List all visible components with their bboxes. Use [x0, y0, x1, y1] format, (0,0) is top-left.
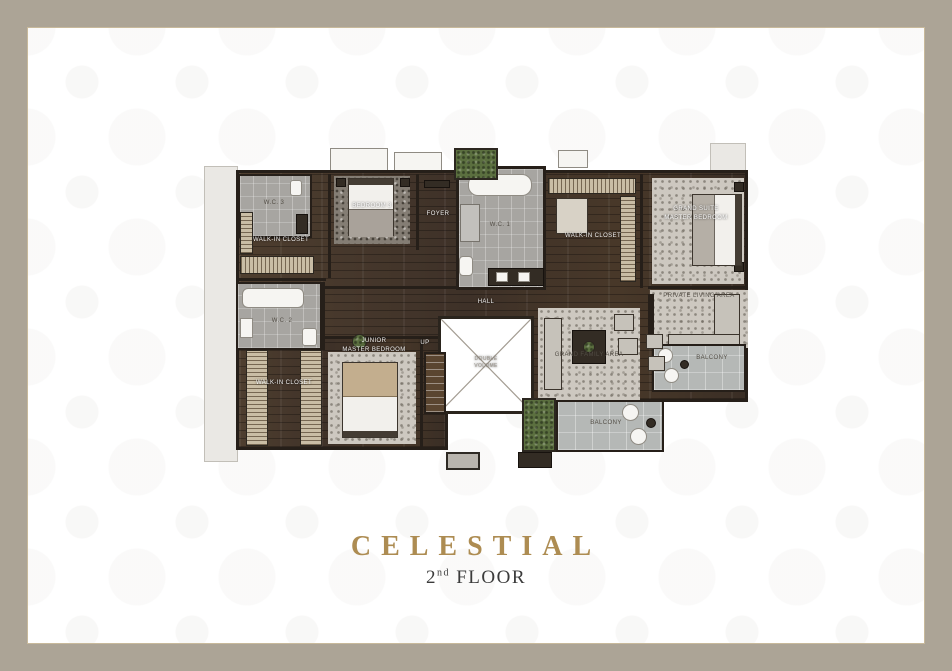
- wardrobe: [620, 196, 636, 282]
- label-balcony-right: BALCONY: [682, 355, 742, 361]
- vanity-counter: [296, 214, 308, 234]
- entry-ledge: [518, 452, 552, 468]
- armchair: [614, 314, 634, 331]
- blanket: [349, 209, 393, 237]
- label-wc3: W.C. 3: [244, 200, 304, 206]
- armchair: [648, 356, 665, 371]
- ledge-box-3: [558, 150, 588, 168]
- floor-number: 2: [426, 567, 437, 588]
- label-void-1: DOUBLE: [448, 357, 524, 362]
- toilet: [302, 328, 317, 346]
- bathtub: [242, 288, 304, 308]
- sink: [518, 272, 530, 282]
- wall-segment: [648, 286, 748, 289]
- wall-segment: [420, 336, 423, 450]
- wardrobe: [240, 212, 253, 254]
- toilet: [290, 180, 302, 196]
- label-walkin-closet-right: WALK-IN CLOSET: [548, 233, 638, 239]
- armchair: [646, 334, 663, 349]
- label-foyer: FOYER: [418, 211, 458, 217]
- ledge-box-1: [330, 148, 388, 172]
- chair: [622, 404, 639, 421]
- closet-island: [556, 198, 588, 234]
- staircase: [424, 352, 446, 414]
- label-walkin-closet-top: WALK-IN CLOSET: [238, 237, 324, 243]
- headboard: [349, 179, 393, 185]
- toilet: [459, 256, 473, 276]
- wardrobe: [300, 350, 322, 446]
- wall-segment: [312, 286, 458, 289]
- nightstand: [734, 182, 744, 192]
- entry-steps: [446, 452, 480, 470]
- label-family-area: GRAND FAMILY AREA: [550, 352, 628, 358]
- label-junior-2: MASTER BEDROOM: [328, 347, 420, 353]
- chair: [630, 428, 647, 445]
- label-hall: HALL: [466, 299, 506, 305]
- label-void-2: VOLUME: [448, 364, 524, 369]
- headboard: [343, 431, 397, 437]
- blanket: [343, 363, 397, 397]
- wardrobe: [240, 256, 314, 274]
- label-walkin-closet-bottom: WALK-IN CLOSET: [240, 380, 328, 386]
- wall-segment: [640, 174, 643, 288]
- label-wc1: W.C. 1: [470, 222, 530, 228]
- label-private-living: PRIVATE LIVING AREA: [652, 293, 746, 299]
- brochure-page: W.C. 3 WALK-IN CLOSET BEDROOM 3 FOYER W.…: [0, 0, 952, 671]
- sink: [496, 272, 508, 282]
- label-grand-suite-2: MASTER BEDROOM: [652, 215, 740, 221]
- floor-title: 2nd FLOOR: [0, 567, 952, 589]
- floor-ordinal: nd: [437, 568, 450, 579]
- terrace-band-left: [204, 166, 238, 462]
- nightstand: [400, 178, 410, 187]
- floor-word: FLOOR: [456, 567, 526, 588]
- planter-bottom: [522, 398, 556, 452]
- side-table: [646, 418, 656, 428]
- side-table: [680, 360, 689, 369]
- label-junior-1: JUNIOR: [328, 338, 420, 344]
- planter-top: [454, 148, 498, 180]
- ledge-box-2: [394, 152, 442, 172]
- nightstand: [336, 178, 346, 187]
- bed-junior-master: [342, 362, 398, 438]
- wall-segment: [322, 282, 325, 350]
- label-wc2: W.C. 2: [252, 318, 312, 324]
- chair: [664, 368, 679, 383]
- label-balcony-bottom: BALCONY: [576, 420, 636, 426]
- console-table: [424, 180, 450, 188]
- unit-title: CELESTIAL: [0, 531, 952, 563]
- label-grand-suite-1: GRAND SUITE: [652, 206, 740, 212]
- wall-segment: [236, 278, 326, 281]
- bed-grand-suite: [692, 194, 742, 266]
- label-bedroom3: BEDROOM 3: [334, 203, 410, 209]
- wardrobe: [548, 178, 636, 194]
- wardrobe: [246, 350, 268, 446]
- wall-segment: [328, 174, 331, 278]
